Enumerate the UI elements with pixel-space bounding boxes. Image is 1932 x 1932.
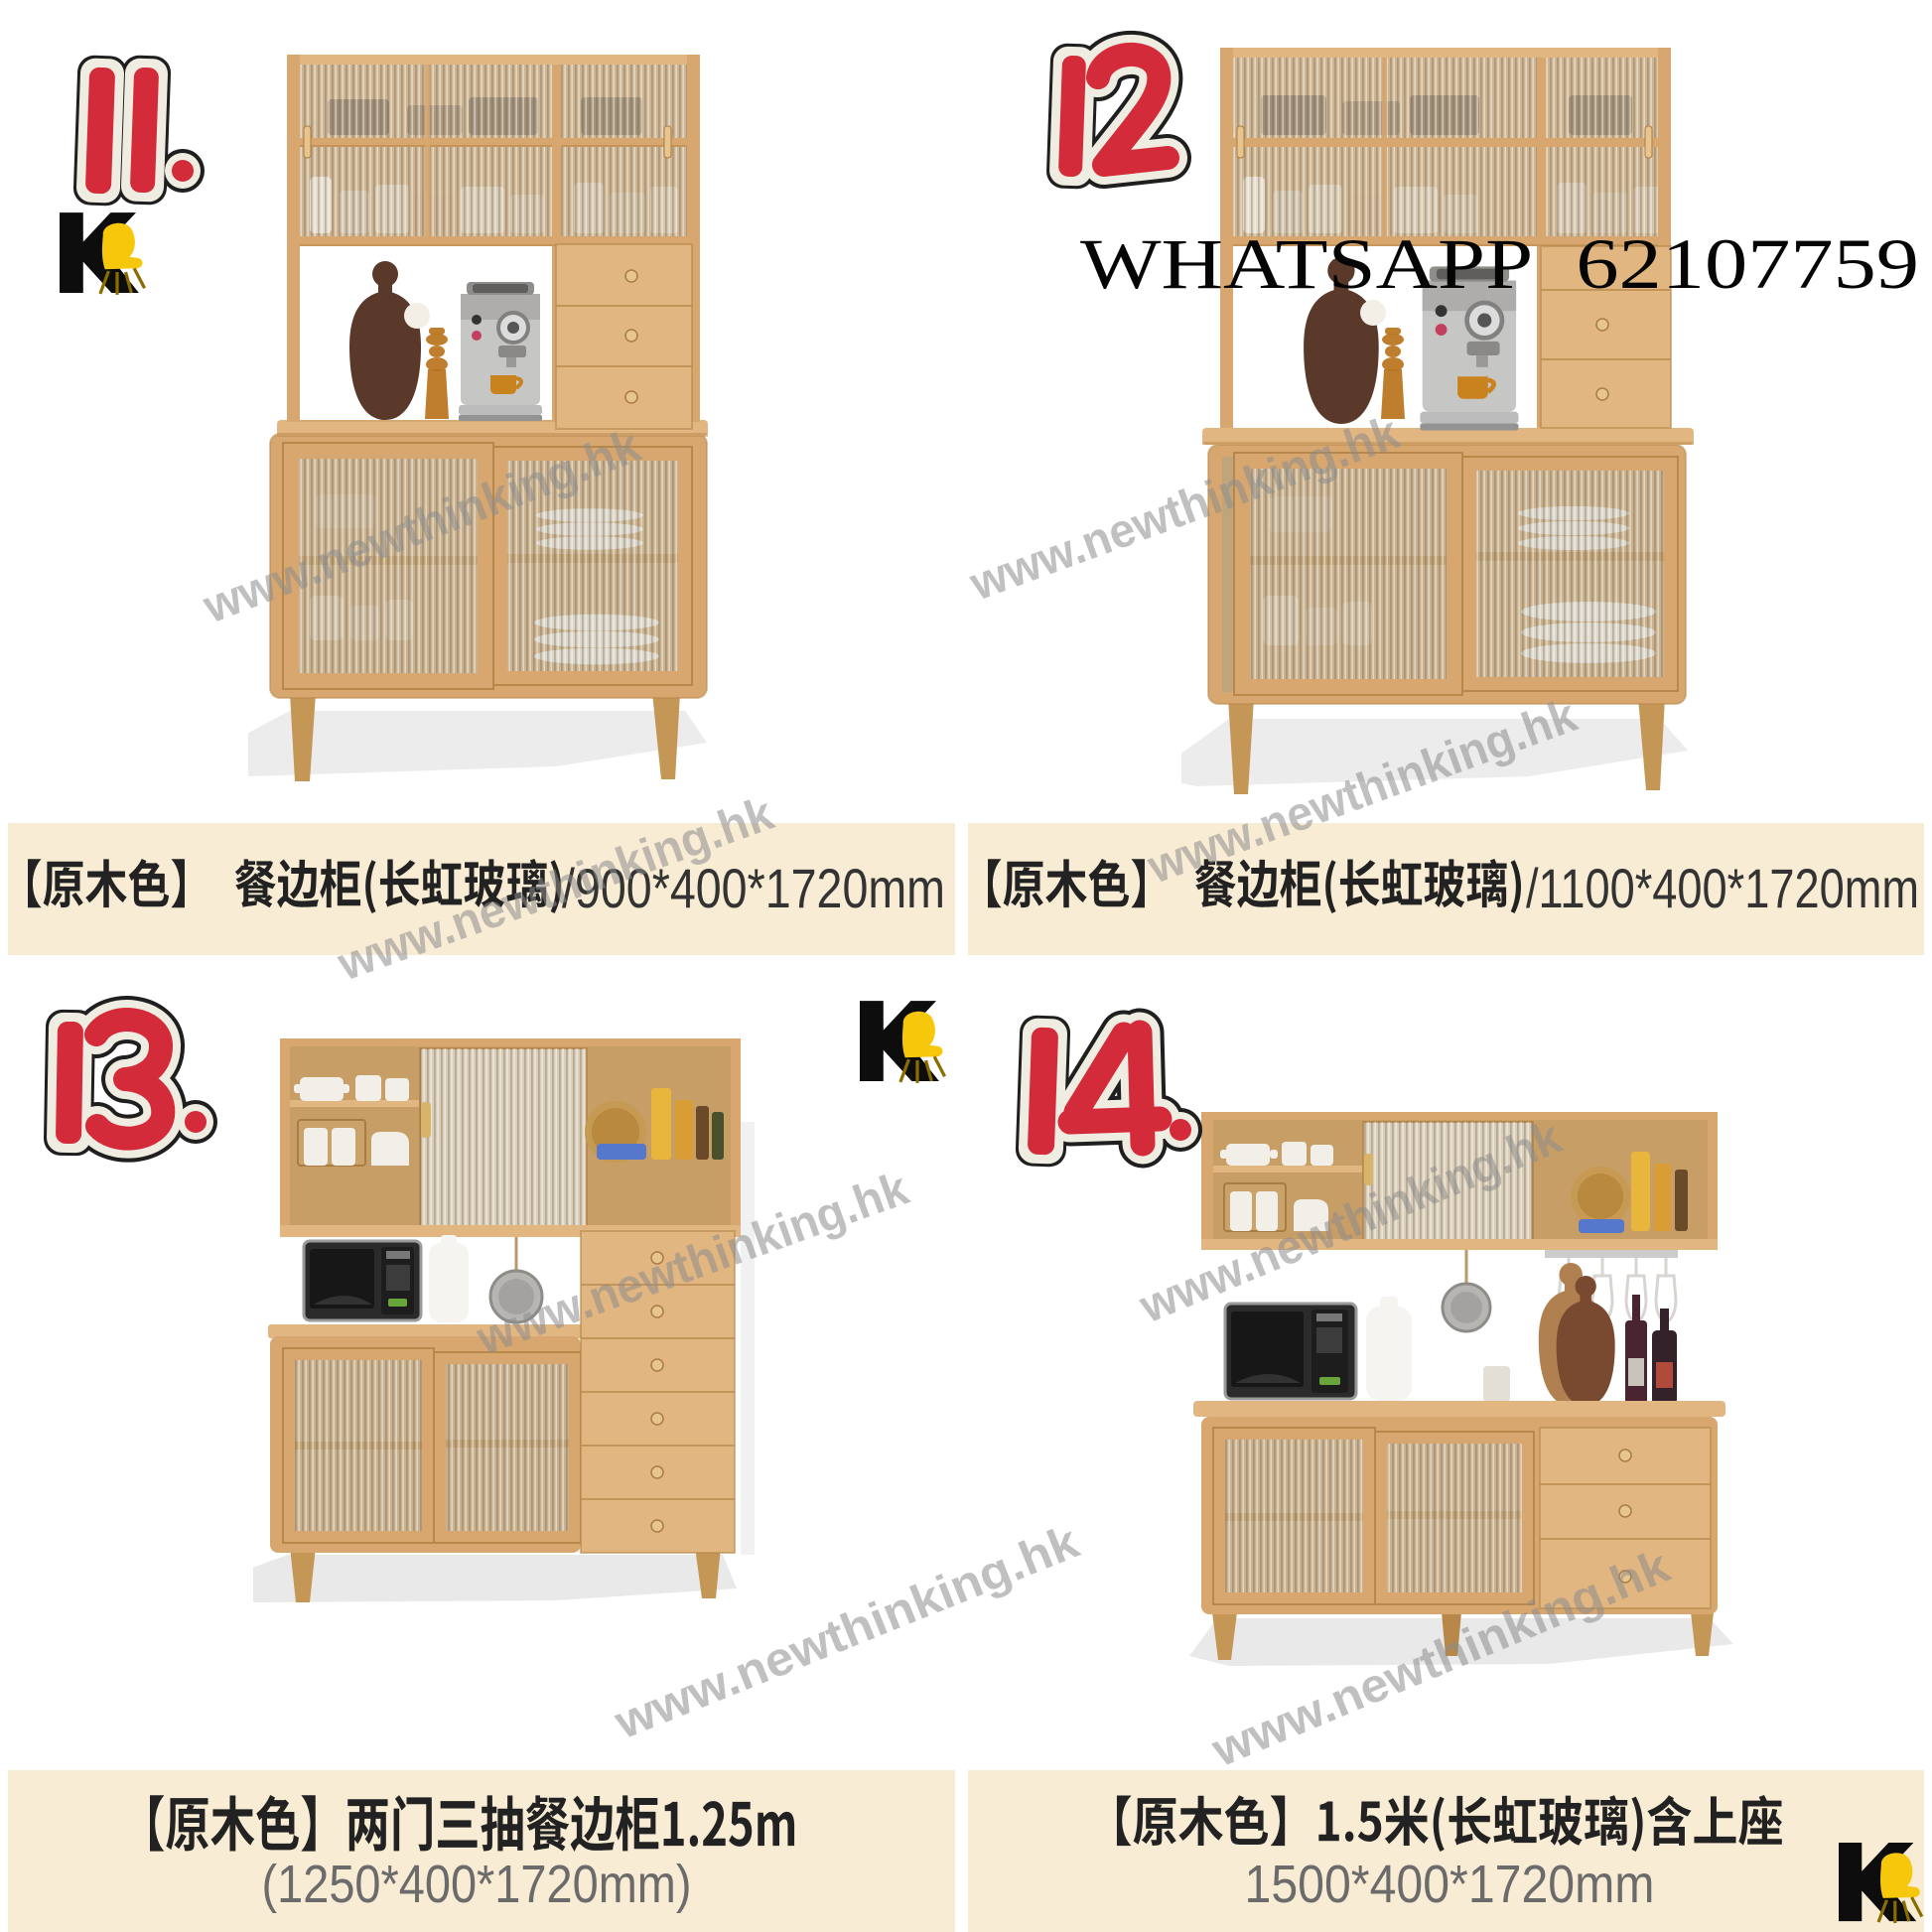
svg-text:WHATSAPP 62107759: WHATSAPP 62107759 — [1080, 224, 1919, 304]
